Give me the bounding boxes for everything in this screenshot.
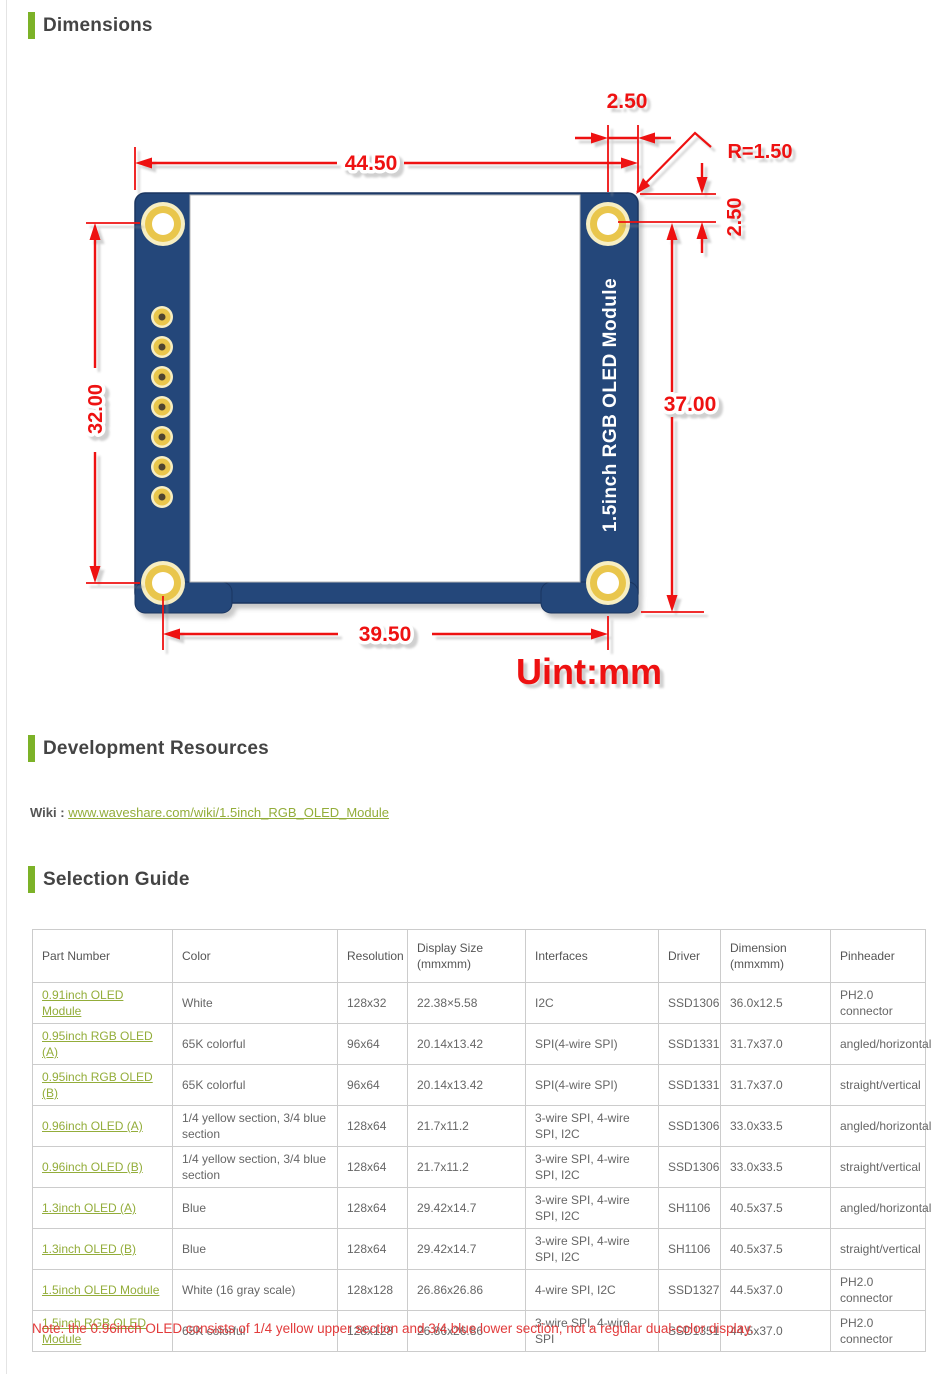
table-cell: 1/4 yellow section, 3/4 blue section xyxy=(173,1106,338,1147)
dim-bottom-width: 39.50 xyxy=(359,623,412,646)
table-cell: 33.0x33.5 xyxy=(721,1147,831,1188)
dim-left-height: 32.00 xyxy=(85,384,107,434)
column-header: Interfaces xyxy=(526,930,659,983)
dim-hole-offset-top: 2.50 xyxy=(607,90,648,113)
table-cell: 128x64 xyxy=(338,1106,408,1147)
table-cell: SSD1306 xyxy=(659,983,721,1024)
table-row: 0.96inch OLED (A)1/4 yellow section, 3/4… xyxy=(33,1106,926,1147)
column-header: Resolution xyxy=(338,930,408,983)
dim-right-height: 37.00 xyxy=(664,393,717,416)
part-number-link[interactable]: 1.5inch OLED Module xyxy=(42,1283,159,1297)
part-number-cell: 1.3inch OLED (B) xyxy=(33,1229,173,1270)
table-cell: 4-wire SPI, I2C xyxy=(526,1270,659,1311)
column-header: Driver xyxy=(659,930,721,983)
table-row: 0.91inch OLED ModuleWhite128x3222.38×5.5… xyxy=(33,983,926,1024)
table-cell: 40.5x37.5 xyxy=(721,1188,831,1229)
part-number-cell: 0.95inch RGB OLED (A) xyxy=(33,1024,173,1065)
table-cell: SPI(4-wire SPI) xyxy=(526,1065,659,1106)
part-number-link[interactable]: 0.95inch RGB OLED (A) xyxy=(42,1029,153,1059)
part-number-cell: 0.91inch OLED Module xyxy=(33,983,173,1024)
selection-table-wrap: Part NumberColorResolutionDisplay Size(m… xyxy=(32,929,925,1352)
table-row: 1.3inch OLED (B)Blue128x6429.42x14.73-wi… xyxy=(33,1229,926,1270)
table-cell: 3-wire SPI, 4-wire SPI, I2C xyxy=(526,1147,659,1188)
table-cell: SPI(4-wire SPI) xyxy=(526,1024,659,1065)
table-cell: 128x32 xyxy=(338,983,408,1024)
table-row: 0.96inch OLED (B)1/4 yellow section, 3/4… xyxy=(33,1147,926,1188)
table-cell: SSD1306 xyxy=(659,1147,721,1188)
table-cell: straight/vertical xyxy=(831,1147,926,1188)
part-number-cell: 1.3inch OLED (A) xyxy=(33,1188,173,1229)
display-window xyxy=(190,195,580,582)
table-cell: 128x64 xyxy=(338,1147,408,1188)
dim-width-top: 44.50 xyxy=(345,152,398,175)
table-cell: 29.42x14.7 xyxy=(408,1188,526,1229)
table-cell: straight/vertical xyxy=(831,1065,926,1106)
selection-table: Part NumberColorResolutionDisplay Size(m… xyxy=(32,929,926,1352)
section-title: Development Resources xyxy=(43,738,269,760)
table-cell: 128x64 xyxy=(338,1229,408,1270)
column-header: Pinheader xyxy=(831,930,926,983)
table-cell: I2C xyxy=(526,983,659,1024)
table-cell: SSD1331 xyxy=(659,1024,721,1065)
table-cell: 36.0x12.5 xyxy=(721,983,831,1024)
table-cell: 3-wire SPI, 4-wire SPI, I2C xyxy=(526,1188,659,1229)
table-cell: SSD1327 xyxy=(659,1270,721,1311)
part-number-cell: 0.96inch OLED (B) xyxy=(33,1147,173,1188)
table-cell: angled/horizontal xyxy=(831,1024,926,1065)
table-cell: 3-wire SPI, 4-wire SPI, I2C xyxy=(526,1229,659,1270)
table-cell: 96x64 xyxy=(338,1065,408,1106)
header-row: Part NumberColorResolutionDisplay Size(m… xyxy=(33,930,926,983)
table-cell: SSD1331 xyxy=(659,1065,721,1106)
table-cell: 40.5x37.5 xyxy=(721,1229,831,1270)
part-number-link[interactable]: 0.95inch RGB OLED (B) xyxy=(42,1070,153,1100)
table-cell: Blue xyxy=(173,1188,338,1229)
part-number-cell: 0.95inch RGB OLED (B) xyxy=(33,1065,173,1106)
section-heading-selection: Selection Guide xyxy=(28,866,190,893)
part-number-link[interactable]: 0.96inch OLED (A) xyxy=(42,1119,143,1133)
module-silkscreen-label: 1.5inch RGB OLED Module xyxy=(600,278,621,532)
table-cell: 20.14x13.42 xyxy=(408,1024,526,1065)
wiki-line: Wiki : www.waveshare.com/wiki/1.5inch_RG… xyxy=(30,805,389,820)
green-bar-icon xyxy=(28,735,35,762)
dimension-diagram: 1.5inch RGB OLED Module xyxy=(0,0,932,730)
table-cell: 128x64 xyxy=(338,1188,408,1229)
table-cell: 31.7x37.0 xyxy=(721,1065,831,1106)
product-page: Dimensions xyxy=(0,0,932,1374)
table-body: 0.91inch OLED ModuleWhite128x3222.38×5.5… xyxy=(33,983,926,1352)
table-cell: 128x128 xyxy=(338,1270,408,1311)
column-header: Display Size(mmxmm) xyxy=(408,930,526,983)
table-cell: 29.42x14.7 xyxy=(408,1229,526,1270)
table-cell: 21.7x11.2 xyxy=(408,1106,526,1147)
unit-label: Uint:mm xyxy=(516,651,662,692)
table-cell: 1/4 yellow section, 3/4 blue section xyxy=(173,1147,338,1188)
table-cell: 3-wire SPI, 4-wire SPI, I2C xyxy=(526,1106,659,1147)
table-cell: PH2.0 connector xyxy=(831,1270,926,1311)
section-heading-development: Development Resources xyxy=(28,735,269,762)
wiki-label: Wiki : xyxy=(30,805,65,820)
table-cell: 26.86x26.86 xyxy=(408,1270,526,1311)
table-cell: 21.7x11.2 xyxy=(408,1147,526,1188)
column-header: Color xyxy=(173,930,338,983)
table-cell: straight/vertical xyxy=(831,1229,926,1270)
table-cell: SH1106 xyxy=(659,1188,721,1229)
dim-hole-offset-right: 2.50 xyxy=(724,198,746,237)
table-cell: 96x64 xyxy=(338,1024,408,1065)
table-cell: 33.0x33.5 xyxy=(721,1106,831,1147)
column-header: Dimension(mmxmm) xyxy=(721,930,831,983)
table-cell: 44.5x37.0 xyxy=(721,1270,831,1311)
table-cell: PH2.0 connector xyxy=(831,983,926,1024)
table-cell: White xyxy=(173,983,338,1024)
table-row: 0.95inch RGB OLED (B)65K colorful96x6420… xyxy=(33,1065,926,1106)
section-title: Selection Guide xyxy=(43,869,190,891)
pcb-drawing: 1.5inch RGB OLED Module xyxy=(135,193,638,613)
part-number-link[interactable]: 0.91inch OLED Module xyxy=(42,988,123,1018)
table-cell: SSD1306 xyxy=(659,1106,721,1147)
part-number-cell: 0.96inch OLED (A) xyxy=(33,1106,173,1147)
table-cell: 22.38×5.58 xyxy=(408,983,526,1024)
table-row: 1.5inch OLED ModuleWhite (16 gray scale)… xyxy=(33,1270,926,1311)
table-row: 0.95inch RGB OLED (A)65K colorful96x6420… xyxy=(33,1024,926,1065)
footnote: Note: the 0.96inch OLED consists of 1/4 … xyxy=(32,1321,912,1336)
dim-corner-radius: R=1.50 xyxy=(727,141,792,163)
table-row: 1.3inch OLED (A)Blue128x6429.42x14.73-wi… xyxy=(33,1188,926,1229)
table-cell: 31.7x37.0 xyxy=(721,1024,831,1065)
table-cell: 65K colorful xyxy=(173,1024,338,1065)
part-number-link[interactable]: 1.3inch OLED (A) xyxy=(42,1201,136,1215)
table-head: Part NumberColorResolutionDisplay Size(m… xyxy=(33,930,926,983)
table-cell: Blue xyxy=(173,1229,338,1270)
wiki-link[interactable]: www.waveshare.com/wiki/1.5inch_RGB_OLED_… xyxy=(68,805,389,820)
table-cell: 65K colorful xyxy=(173,1065,338,1106)
table-cell: SH1106 xyxy=(659,1229,721,1270)
table-cell: angled/horizontal xyxy=(831,1188,926,1229)
table-cell: angled/horizontal xyxy=(831,1106,926,1147)
green-bar-icon xyxy=(28,866,35,893)
column-header: Part Number xyxy=(33,930,173,983)
part-number-cell: 1.5inch OLED Module xyxy=(33,1270,173,1311)
table-cell: White (16 gray scale) xyxy=(173,1270,338,1311)
table-cell: 20.14x13.42 xyxy=(408,1065,526,1106)
part-number-link[interactable]: 0.96inch OLED (B) xyxy=(42,1160,143,1174)
part-number-link[interactable]: 1.3inch OLED (B) xyxy=(42,1242,136,1256)
